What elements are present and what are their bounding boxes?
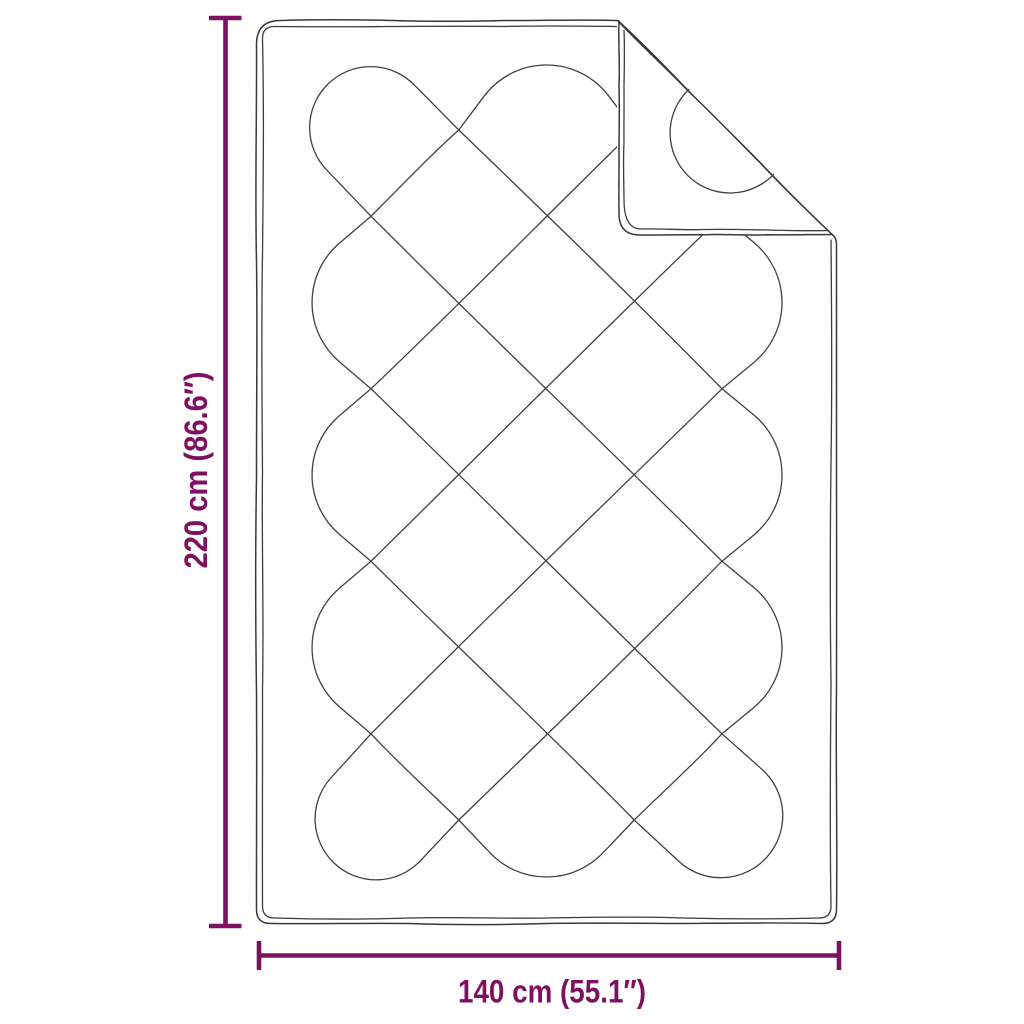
- svg-text:220 cm (86.6″): 220 cm (86.6″): [178, 372, 214, 569]
- svg-text:140 cm (55.1″): 140 cm (55.1″): [458, 974, 646, 1010]
